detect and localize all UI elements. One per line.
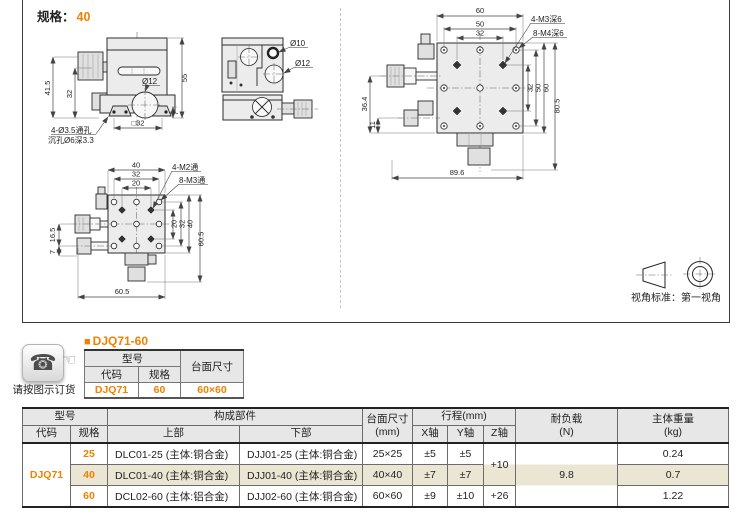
dim-20-top: 20 — [132, 179, 140, 188]
cell-y: ±5 — [448, 443, 484, 465]
dim-89-6: 89.6 — [450, 168, 465, 177]
side-view-drawing: Ø10 Ø12 — [205, 30, 335, 130]
cell-x: ±9 — [413, 486, 448, 508]
spec-label: 规格： — [37, 10, 75, 24]
order-code-value: DJQ71 — [85, 383, 139, 399]
spec-table: 型号 构成部件 台面尺寸 (mm) 行程(mm) 耐负载 (N) 主体重量 (k… — [22, 407, 729, 508]
cell-surface: 40×40 — [363, 465, 413, 486]
dim-16-5: 16.5 — [48, 228, 57, 243]
cell-z-25-40: +10 — [484, 443, 516, 486]
dim-7: 7 — [48, 250, 57, 254]
order-surface-header: 台面尺寸 — [181, 350, 244, 383]
front-view-drawing: 41.5 32 55 7 □32 Ø12 4-Ø3.5通孔 沉孔Ø6深3.3 — [35, 30, 200, 150]
header-travel: 行程(mm) — [413, 408, 516, 426]
table-row: 60 DCL02-60 (主体:铝合金) DJJ02-60 (主体:铜合金) 6… — [23, 486, 729, 508]
cell-y: ±7 — [448, 465, 484, 486]
cell-weight: 0.7 — [618, 465, 729, 486]
label-dia12: Ø12 — [142, 77, 158, 86]
phone-icon: ☎ — [29, 350, 56, 376]
header-surface: 台面尺寸 (mm) — [363, 408, 413, 443]
cell-weight: 0.24 — [618, 443, 729, 465]
square-bullet-icon: ■ — [84, 336, 91, 348]
catalog-page: 规格：40 41.5 32 55 — [0, 0, 750, 521]
header-spec: 规格 — [71, 426, 108, 444]
cell-spec: 60 — [71, 486, 108, 508]
header-weight-l2: (kg) — [620, 426, 726, 438]
order-spec-header: 规格 — [139, 367, 181, 383]
cell-upper: DCL02-60 (主体:铝合金) — [108, 486, 240, 508]
cell-weight: 1.22 — [618, 486, 729, 508]
dim-60-5-bottom: 60.5 — [115, 287, 130, 296]
cell-surface: 25×25 — [363, 443, 413, 465]
spec-header: 规格：40 — [37, 6, 90, 25]
header-load-l1: 耐负载 — [518, 413, 615, 425]
order-surface-value: 60×60 — [181, 383, 244, 399]
header-load: 耐负载 (N) — [516, 408, 618, 443]
label-8-m3: 8-M3通 — [179, 175, 205, 185]
frame-bottom-border — [22, 322, 730, 323]
table-row: DJQ71 25 DLC01-25 (主体:铜合金) DJJ01-25 (主体:… — [23, 443, 729, 465]
bottom-view-drawing: 40 32 20 4-M2通 8-M3通 20 32 40 60.5 — [45, 158, 280, 308]
order-title-text: DJQ71-60 — [93, 334, 148, 348]
pointing-hand-icon: ☜ — [62, 350, 76, 370]
dim-sq32: □32 — [132, 119, 145, 128]
cell-z-60: +26 — [484, 486, 516, 508]
cell-x: ±5 — [413, 443, 448, 465]
header-x-axis: X轴 — [413, 426, 448, 444]
header-model: 型号 — [23, 408, 108, 426]
cell-lower: DJJ01-40 (主体:铜合金) — [240, 465, 363, 486]
projection-caption: 视角标准：第一视角 — [631, 291, 721, 304]
dim-60-5-right: 60.5 — [197, 232, 206, 247]
order-code-header: 代码 — [85, 367, 139, 383]
label-4-m3: 4-M3深6 — [531, 15, 562, 24]
header-weight-l1: 主体重量 — [620, 413, 726, 425]
note-holes-line2: 沉孔Ø6深3.3 — [48, 136, 94, 145]
header-components: 构成部件 — [108, 408, 363, 426]
cell-lower: DJJ01-25 (主体:铜合金) — [240, 443, 363, 465]
dim-40-right: 40 — [186, 220, 195, 228]
cell-load: 9.8 — [516, 443, 618, 507]
target-circles-icon — [683, 257, 717, 291]
dim-32-left: 32 — [65, 90, 74, 98]
dim-50-top: 50 — [476, 20, 484, 29]
order-model-header: 型号 — [85, 350, 181, 367]
label-dia12: Ø12 — [295, 59, 311, 68]
header-y-axis: Y轴 — [448, 426, 484, 444]
header-code: 代码 — [23, 426, 71, 444]
cell-upper: DLC01-25 (主体:铜合金) — [108, 443, 240, 465]
dim-60-top: 60 — [476, 6, 484, 15]
header-surface-l2: (mm) — [365, 426, 410, 438]
spec-value: 40 — [77, 10, 91, 24]
header-z-axis: Z轴 — [484, 426, 516, 444]
cell-x: ±7 — [413, 465, 448, 486]
frame-left-border — [22, 0, 23, 322]
cell-code: DJQ71 — [23, 443, 71, 507]
cell-lower: DJJ02-60 (主体:铜合金) — [240, 486, 363, 508]
header-load-l2: (N) — [518, 426, 615, 438]
cell-spec: 25 — [71, 443, 108, 465]
dim-40-top: 40 — [132, 161, 140, 170]
cell-surface: 60×60 — [363, 486, 413, 508]
dim-32-top: 32 — [476, 29, 484, 38]
label-8-m4: 8-M4深6 — [533, 29, 564, 38]
dim-32-top: 32 — [132, 170, 140, 179]
header-weight: 主体重量 (kg) — [618, 408, 729, 443]
order-table: 型号 台面尺寸 代码 规格 DJQ71 60 60×60 — [84, 349, 244, 399]
projection-symbol: 视角标准：第一视角 — [628, 246, 743, 308]
cell-y: ±10 — [448, 486, 484, 508]
phone-order-icon-box: ☎ — [22, 344, 64, 382]
cell-spec: 40 — [71, 465, 108, 486]
dim-55: 55 — [180, 74, 189, 82]
label-4-m2: 4-M2通 — [172, 162, 198, 172]
dim-7: 7 — [171, 111, 180, 115]
top-view-drawing: 60 50 32 4-M3深6 8-M4深6 32 50 60 80.5 — [358, 2, 638, 184]
header-lower: 下部 — [240, 426, 363, 444]
order-title: ■DJQ71-60 — [84, 334, 148, 348]
note-holes-line1: 4-Ø3.5通孔 — [51, 125, 91, 135]
label-dia10: Ø10 — [290, 39, 306, 48]
dim-60-right: 60 — [542, 84, 551, 92]
dim-11: 11 — [368, 121, 377, 129]
table-row-highlighted: 40 DLC01-40 (主体:铜合金) DJJ01-40 (主体:铜合金) 4… — [23, 465, 729, 486]
header-surface-l1: 台面尺寸 — [365, 413, 410, 425]
cell-upper: DLC01-40 (主体:铜合金) — [108, 465, 240, 486]
dim-41-5: 41.5 — [43, 81, 52, 96]
dim-36-4: 36.4 — [360, 97, 369, 112]
header-upper: 上部 — [108, 426, 240, 444]
order-spec-value: 60 — [139, 383, 181, 399]
dashed-separator — [340, 8, 341, 308]
dim-80-5: 80.5 — [553, 99, 562, 114]
order-caption: 请按图示订货 — [4, 382, 84, 397]
